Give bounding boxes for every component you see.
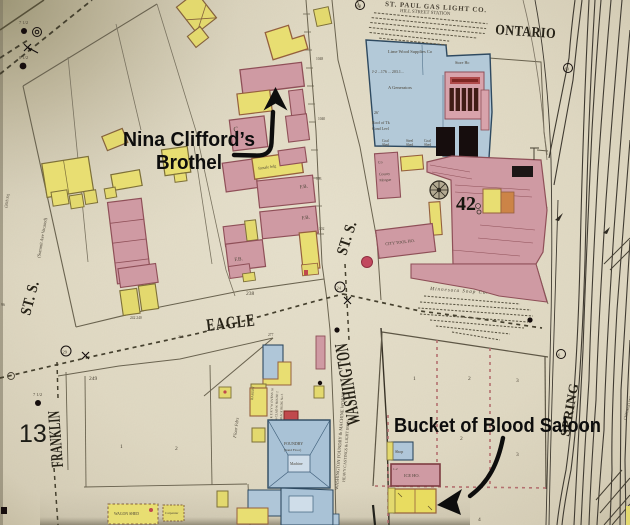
svg-text:Morgue: Morgue [379,178,392,183]
svg-text:Shop: Shop [395,449,403,454]
svg-text:3: 3 [516,378,519,384]
svg-text:Store Ho: Store Ho [455,60,469,65]
svg-text:29: 29 [63,350,68,355]
svg-text:42: 42 [456,193,476,215]
svg-text:Carpenter: Carpenter [165,511,179,515]
svg-text:F.B.: F.B. [300,185,309,191]
svg-text:241: 241 [178,335,184,339]
svg-text:Nina Clifford’s: Nina Clifford’s [123,128,255,151]
svg-text:1: 1 [413,376,416,382]
svg-text:60: 60 [565,67,570,72]
svg-text:WAGON SHED: WAGON SHED [114,512,139,516]
svg-text:24: 24 [337,286,342,291]
svg-text:Shed: Shed [424,143,431,147]
svg-text:242 240: 242 240 [130,316,142,320]
svg-text:ICE HO.: ICE HO. [404,473,420,478]
svg-text:7 1/2: 7 1/2 [19,20,28,25]
svg-text:4: 4 [478,517,481,523]
svg-text:F.B.: F.B. [302,216,311,222]
svg-text:13: 13 [19,420,47,448]
svg-text:Lime Wood Supplies Co: Lime Wood Supplies Co [388,49,433,54]
svg-text:1-2: 1-2 [393,467,398,471]
svg-text:2: 2 [175,446,178,452]
svg-text:1048: 1048 [316,57,323,61]
svg-text:238: 238 [246,291,255,297]
svg-text:277: 277 [268,333,274,337]
svg-text:Shed: Shed [382,143,389,147]
svg-text:2: 2 [468,376,471,382]
svg-text:F.B.: F.B. [234,257,243,263]
svg-text:96: 96 [1,302,5,307]
svg-text:8 1/2: 8 1/2 [19,55,28,60]
svg-text:26': 26' [374,110,379,115]
svg-text:60: 60 [357,4,362,9]
svg-text:County: County [379,172,391,177]
svg-text:A Generators: A Generators [388,85,412,90]
svg-text:FOUNDRY: FOUNDRY [284,441,303,446]
svg-text:249: 249 [89,376,98,382]
svg-text:1040: 1040 [318,117,325,121]
svg-text:(Sand Floor): (Sand Floor) [284,448,301,452]
svg-text:103: 103 [316,177,322,181]
svg-text:Roof of Tk: Roof of Tk [372,120,390,125]
svg-text:3: 3 [516,452,519,458]
svg-text:Co: Co [378,160,383,164]
svg-text:102: 102 [319,227,325,231]
svg-text:Brothel: Brothel [156,151,222,174]
svg-text:J-2 ...176 ... 203.1...: J-2 ...176 ... 203.1... [372,69,404,74]
svg-text:Shed: Shed [406,143,413,147]
svg-text:Cond Levl: Cond Levl [372,126,390,131]
svg-text:Bucket of Blood Saloon: Bucket of Blood Saloon [394,415,601,437]
svg-text:7 1/2: 7 1/2 [33,392,42,397]
svg-text:Machine: Machine [290,462,303,466]
svg-text:1: 1 [120,444,123,450]
